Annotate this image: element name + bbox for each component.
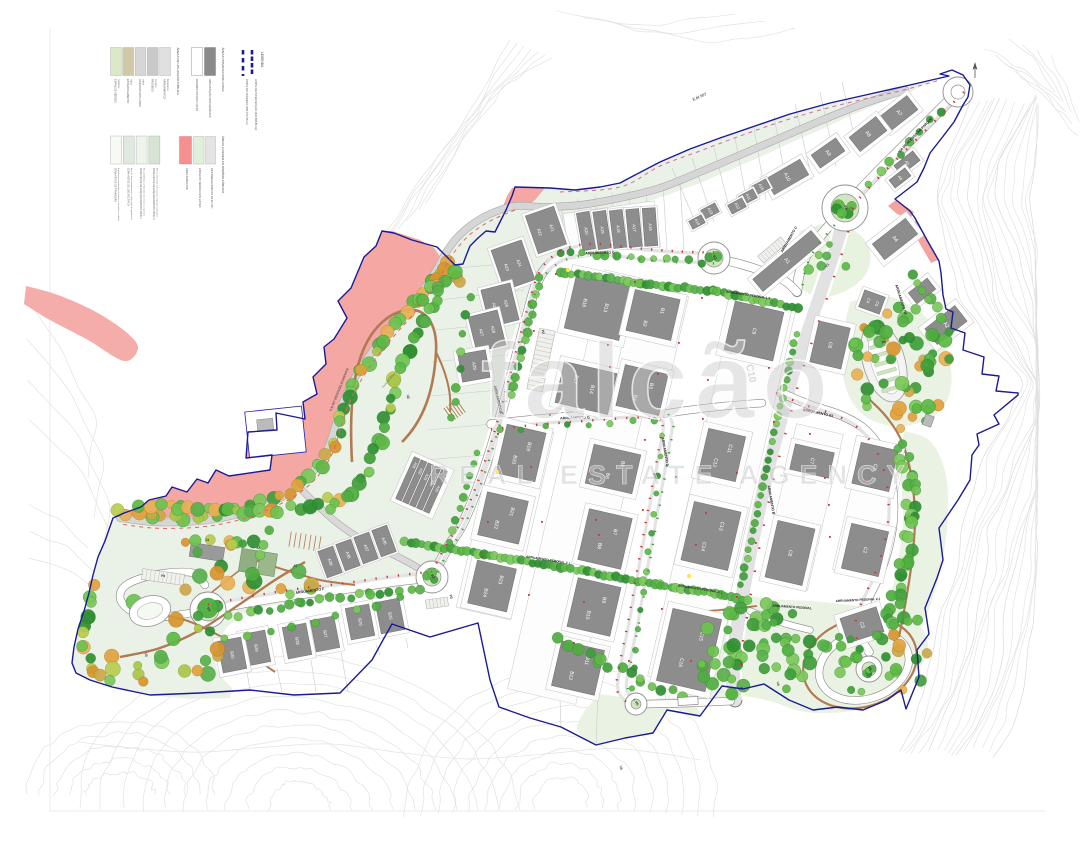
svg-text:J1: J1: [293, 564, 297, 569]
svg-text:A16: A16: [648, 223, 654, 231]
svg-text:ACESSOS AOS LOTES: ACESSOS AOS LOTES: [138, 79, 142, 107]
svg-text:Área de lazer estreitamente a: Área de lazer estreitamente a valorizaçã…: [130, 168, 133, 220]
svg-text:ÁREAS PRIVADAS DOS LOTES: ÁREAS PRIVADAS DOS LOTES: [221, 48, 225, 92]
svg-text:ZONA VERDE DE ENQUADRAMENTO NÍ: ZONA VERDE DE ENQUADRAMENTO NÍVEL II: [152, 168, 155, 220]
svg-text:P4: P4: [161, 574, 166, 579]
svg-text:ÁREA SOBRANTE: ÁREA SOBRANTE: [185, 168, 189, 190]
svg-text:J2: J2: [256, 546, 260, 551]
svg-text:LEGENDA: LEGENDA: [260, 52, 264, 68]
svg-text:cubos: cubos: [129, 79, 131, 86]
svg-text:A17: A17: [632, 224, 638, 233]
svg-text:ESPAÇOS VERDES DOS LOTES: ESPAÇOS VERDES DOS LOTES: [198, 168, 202, 208]
svg-text:ÁREAS A CEDER AO DOMÍNIO PÚBLI: ÁREAS A CEDER AO DOMÍNIO PÚBLICO: [221, 136, 226, 194]
svg-text:ARRUAMENTOS: ARRUAMENTOS: [163, 79, 167, 99]
svg-text:ESPAÇOS VERDES: ESPAÇOS VERDES: [114, 79, 118, 103]
svg-text:RESTABELECIMENTO DA EN 207: RESTABELECIMENTO DA EN 207: [210, 168, 214, 209]
svg-text:ZONA VERDE DE ENQUADRAMENTO NÍ: ZONA VERDE DE ENQUADRAMENTO NÍVEL I: [139, 168, 142, 219]
svg-text:ZONA VERDE DE USO MÚLTIPLO: ZONA VERDE DE USO MÚLTIPLO: [126, 168, 129, 206]
svg-text:PAVIMENTOS DOS LOTES: PAVIMENTOS DOS LOTES: [195, 79, 199, 111]
svg-text:Área prioritária a reflorestar: Área prioritária a reflorestar com recur…: [143, 168, 146, 216]
svg-text:ZONA VERDE DE TRANSIÇÃO: ZONA VERDE DE TRANSIÇÃO: [114, 168, 117, 202]
svg-text:A18: A18: [615, 225, 621, 234]
svg-text:canteiros: canteiros: [117, 79, 120, 89]
svg-text:REAL ESTATE AGENCY: REAL ESTATE AGENCY: [429, 460, 914, 490]
svg-text:cubos: cubos: [142, 79, 144, 86]
svg-text:ESTACIONAMENTO: ESTACIONAMENTO: [126, 79, 130, 103]
svg-text:mosaico: mosaico: [154, 79, 156, 88]
svg-text:ÁREAS DE UTILIZAÇÃO PÚBLICA: ÁREAS DE UTILIZAÇÃO PÚBLICA: [176, 48, 181, 95]
svg-text:J3: J3: [205, 538, 209, 543]
svg-text:falcão: falcão: [481, 320, 835, 441]
svg-text:Área a reflorestar com recurso: Área a reflorestar com recurso a espécie…: [155, 168, 158, 217]
svg-text:A preservar a morfologia do te: A preservar a morfologia do terreno e de…: [117, 168, 120, 222]
svg-text:PASSEIOS: PASSEIOS: [150, 79, 154, 92]
svg-text:LIMITE DO TERRENO (380.470,78: LIMITE DO TERRENO (380.470,78 m²): [245, 79, 249, 125]
svg-text:betuminoso: betuminoso: [166, 79, 169, 92]
